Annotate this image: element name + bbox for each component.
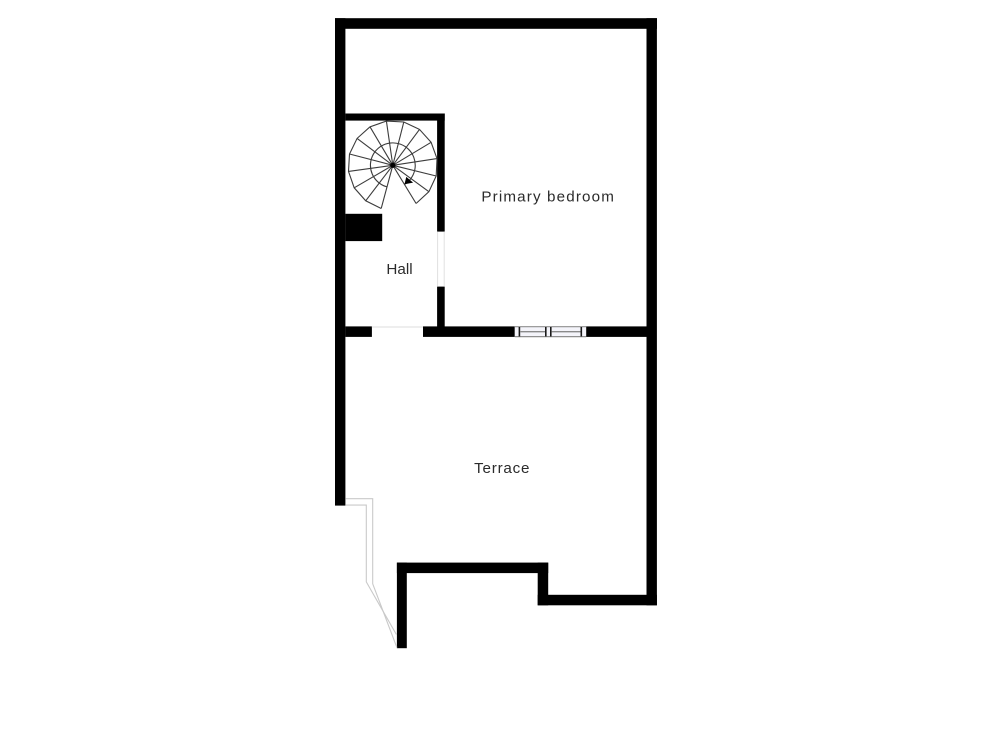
svg-text:Hall: Hall	[386, 261, 412, 278]
svg-text:Terrace: Terrace	[474, 460, 530, 477]
svg-text:Primary bedroom: Primary bedroom	[481, 189, 615, 206]
